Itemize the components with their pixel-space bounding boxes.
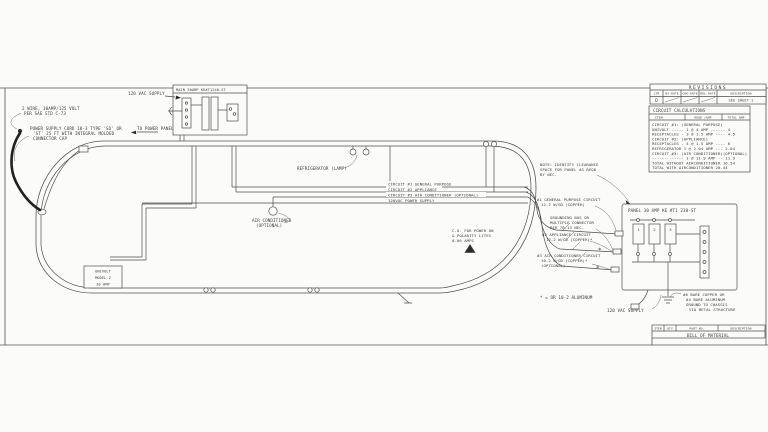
univolt-detail: UNIVOLT MODEL 2 30 AMP bbox=[84, 266, 122, 288]
arrowhead-left bbox=[131, 131, 136, 135]
roof-junction bbox=[483, 141, 488, 146]
calc-header-reqd: REQD /AMP bbox=[694, 116, 711, 120]
bom-header-item: ITEM bbox=[654, 327, 662, 331]
nec-note-line-3: BY NEC. bbox=[540, 172, 557, 177]
bom-table: ITEM QTY PART NO. DESCRIPTION BILL OF MA… bbox=[652, 325, 765, 338]
floor-receptacle bbox=[204, 288, 208, 292]
bom-header-part: PART NO. bbox=[689, 327, 704, 331]
revisions-header-ltr: LTR bbox=[654, 92, 660, 96]
circuit-3-panel-line-3: (OPTIONAL) bbox=[541, 263, 565, 268]
refrigerator-lamp bbox=[363, 149, 369, 155]
air-conditioner-label-2: (OPTIONAL) bbox=[256, 223, 282, 228]
refrigerator-lamp bbox=[350, 149, 356, 155]
run-label-circuit-2: CIRCUIT #2 APPLIANCE bbox=[388, 187, 437, 192]
univolt-label-3: 30 AMP bbox=[96, 283, 110, 287]
circuit-2-panel-line-2: 12-2 W/GD (COPPER)* bbox=[546, 237, 593, 242]
revisions-table: REVISIONS LTR BY-DATE CHK-DATE REL-DATE … bbox=[650, 84, 766, 104]
grounding-bus-line-3: PER 70-13 NEC. bbox=[550, 225, 584, 230]
floor-receptacle bbox=[315, 288, 319, 292]
vac-supply-bottom-label: 120 VAC SUPPLY bbox=[607, 308, 644, 313]
panel-title: PANEL 30 AMP KE #T1 230-ST bbox=[628, 208, 697, 213]
revision-description: SEE SHEET 1 bbox=[729, 99, 754, 103]
calc-title: CIRCUIT CALCULATIONS bbox=[653, 108, 706, 113]
run-label-vac-supply: 120VAC POWER SUPPLY bbox=[388, 198, 435, 203]
run-label-circuit-1: CIRCUIT #1 GENERAL PURPOSE bbox=[388, 182, 452, 187]
calc-row: TOTAL WITH AIRCONDITIONER 28.44 bbox=[652, 165, 728, 170]
bom-title: BILL OF MATERIAL bbox=[687, 333, 729, 338]
cable-clamp bbox=[613, 249, 621, 254]
support-jack bbox=[398, 293, 412, 303]
revisions-header-rel: REL-DATE bbox=[700, 92, 715, 96]
cable-clamp bbox=[615, 231, 623, 236]
revisions-title: REVISIONS bbox=[689, 85, 727, 91]
revision-letter: D bbox=[655, 98, 658, 103]
ground-note-line-4: VIA METAL STRUCTURE bbox=[689, 307, 736, 312]
terminal-block bbox=[227, 104, 238, 121]
cord-connector bbox=[79, 146, 88, 152]
to-power-panel-label: TO POWER PANEL bbox=[137, 126, 174, 131]
vac-supply-top-label: 120 VAC SUPPLY bbox=[128, 91, 165, 96]
wiring-diagram-sheet: UNIVOLT MODEL 2 30 AMP PANEL 30 AMP KE #… bbox=[0, 0, 768, 432]
polarity-device bbox=[465, 245, 475, 253]
cable-clamp bbox=[611, 267, 619, 272]
revisions-header-chk: CHK-DATE bbox=[682, 92, 697, 96]
main-breaker-1 bbox=[202, 97, 209, 130]
circuit-calc-table: CIRCUIT CALCULATIONS ITEM REQD /AMP TOTA… bbox=[649, 106, 750, 172]
main-breaker-label: MAIN 30AMP KE#T1240-ST bbox=[176, 88, 227, 92]
air-conditioner-symbol bbox=[269, 207, 277, 215]
co-polarity-line-3: 0.06 AMPS bbox=[452, 238, 475, 243]
bom-header-desc: DESCRIPTION bbox=[731, 327, 752, 331]
univolt-label-1: UNIVOLT bbox=[95, 270, 112, 274]
refrigerator-label: REFRIGERATOR (LAMP) bbox=[297, 166, 347, 171]
univolt-label-2: MODEL 2 bbox=[95, 276, 111, 280]
cord-note-line-3: CONNECTOR CAP bbox=[33, 136, 67, 141]
calc-header-item: ITEM bbox=[655, 116, 663, 120]
roof-junction bbox=[491, 141, 496, 146]
revisions-header-by: BY-DATE bbox=[665, 92, 678, 96]
footnote-star: * bbox=[596, 265, 600, 272]
run-label-circuit-3: CIRCUIT #3 AIR CONDITIONER (OPTIONAL) bbox=[388, 193, 478, 198]
circuit-1-panel-line-2: 12-2 W/GD (COPPER) bbox=[541, 202, 585, 207]
calc-header-total: TOTAL AMP bbox=[727, 116, 744, 120]
wire-spec-line-2: PER SAE STD C-73 bbox=[24, 111, 66, 116]
blueprint-canvas: UNIVOLT MODEL 2 30 AMP PANEL 30 AMP KE #… bbox=[0, 0, 768, 432]
bom-header-qty: QTY bbox=[667, 327, 673, 331]
floor-receptacle bbox=[308, 288, 312, 292]
revisions-header-desc: DESCRIPTION bbox=[731, 92, 752, 96]
aluminum-footnote: * = OR 10-2 ALUMINUM bbox=[540, 295, 593, 300]
floor-receptacle bbox=[211, 288, 215, 292]
main-breaker-2 bbox=[211, 97, 218, 130]
